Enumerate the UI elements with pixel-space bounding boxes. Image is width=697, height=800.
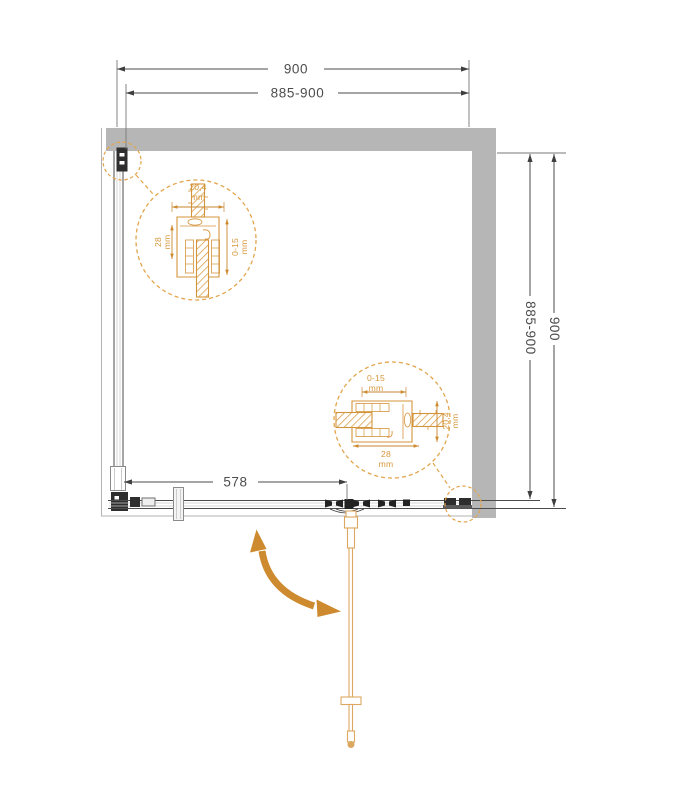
door-glass-edge xyxy=(349,548,353,697)
drawing-svg: 900 885-900 885-900 900 578 xyxy=(0,0,697,800)
right-wall xyxy=(472,128,496,518)
floor-bracket xyxy=(174,488,184,521)
fixed-panel-left xyxy=(111,148,129,512)
dim-depth-adjust-label: 885-900 xyxy=(523,301,538,355)
detail-callout-bottom-right: 0-15 mm 28 mm 20,4 mm xyxy=(334,362,481,522)
glass-panel-section xyxy=(336,413,372,428)
detail-adjust-range-unit: mm xyxy=(369,383,384,393)
detail-profile-width: 20,4 xyxy=(189,182,207,192)
door-pivot-hinge xyxy=(346,511,356,517)
clamp-hook xyxy=(203,230,210,239)
top-wall xyxy=(106,128,496,151)
wall-profile-section xyxy=(336,401,443,442)
glass-panel-section xyxy=(197,240,209,297)
door-bottom-cap xyxy=(348,731,355,742)
dim-door-opening-label: 578 xyxy=(223,475,247,490)
dim-width-adjust-label: 885-900 xyxy=(271,86,325,101)
detail-profile-depth-unit: mm xyxy=(379,459,394,469)
callout-leader xyxy=(136,175,153,194)
dim-width-label: 900 xyxy=(284,62,308,77)
detail-profile-depth-unit: mm xyxy=(162,235,172,250)
detail-adjust-range: 0-15 xyxy=(367,373,385,383)
walls xyxy=(102,128,497,518)
wall-profile-top xyxy=(117,148,128,172)
panel-clamp xyxy=(142,498,155,506)
adjustment-screw xyxy=(413,414,443,427)
tray-outline xyxy=(102,128,474,516)
detail-profile-width-unit: mm xyxy=(450,414,460,429)
dim-depth-label: 900 xyxy=(547,317,562,341)
callout-leader xyxy=(433,463,450,488)
corner-bracket xyxy=(130,497,140,507)
arrowhead-right xyxy=(317,600,342,618)
door-swing-arrow xyxy=(250,530,341,618)
shower-enclosure-drawing: 900 885-900 885-900 900 578 xyxy=(0,0,697,800)
detail-profile-depth: 28 xyxy=(381,449,391,459)
detail-adjust-range-unit: mm xyxy=(239,240,249,255)
door-handle xyxy=(341,697,361,705)
panel-sleeve-profile xyxy=(111,467,126,491)
detail-profile-width-unit: mm xyxy=(191,192,206,202)
arrowhead-up xyxy=(250,530,267,553)
door-leaf-open xyxy=(341,511,361,748)
